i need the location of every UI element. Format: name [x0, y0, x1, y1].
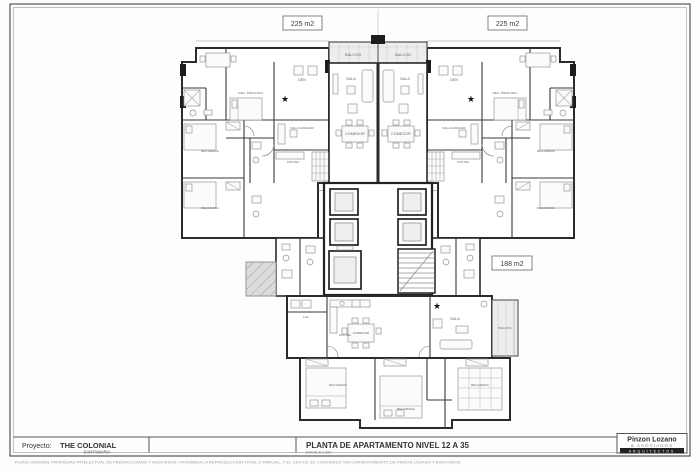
room-label-balcon-right: BALCON: [395, 53, 411, 57]
room-label-sala-left: SALA: [346, 77, 356, 81]
star-symbol-icon: ★: [433, 301, 441, 311]
room-label-recamara-right-2: RECAMARA: [537, 206, 555, 210]
area-badge-label: 225 m2: [291, 21, 314, 28]
firm-line3: ARQUITECTOS: [629, 449, 675, 453]
firm-logo: Pinzon Lozano & ASOCIADOS ARQUITECTOS: [617, 434, 687, 454]
firm-line2: & ASOCIADOS: [631, 443, 673, 448]
room-label-comedor-bottom: COMEDOR: [353, 331, 370, 335]
room-label-sala-bottom: SALA: [450, 317, 460, 321]
apartment-top-left: ★: [180, 48, 330, 296]
drawing-sheet: ★: [0, 0, 700, 471]
center-band: [325, 35, 431, 183]
room-label-recamara-bottom-2: RECAMARA: [397, 407, 415, 411]
core-block: [324, 183, 435, 295]
project-subtitle: SANTAMARIA: [84, 450, 111, 455]
room-label-den-left: DEN: [298, 78, 306, 82]
room-label-cocina-left: COCINA: [287, 160, 299, 164]
room-label-recamara-bottom-3: RECAMARA: [471, 383, 489, 387]
star-symbol-icon: ★: [281, 94, 289, 104]
room-label-comedor-left: COMEDOR: [345, 132, 365, 136]
room-label-recamara-right-1: RECAMARA: [537, 149, 555, 153]
copyright-disclaimer: PLANO ORIGINAL PROPIEDAD INTELECTUAL DE …: [15, 460, 462, 465]
room-label-recamara-bottom-1: RECAMARA: [329, 383, 347, 387]
room-label-lav: LAV: [303, 315, 309, 319]
room-label-cocina-bottom: COCINA: [339, 333, 351, 337]
drawing-title: PLANTA DE APARTAMENTO NIVEL 12 A 35: [306, 441, 470, 450]
title-block: Proyecto: THE COLONIAL SANTAMARIA PLANTA…: [14, 434, 688, 455]
room-label-den-right: DEN: [450, 78, 458, 82]
drawing-scale: ESCALA 1:100: [306, 451, 331, 455]
hatched-terrace: [246, 262, 276, 296]
room-label-recamara-left-1: RECAMARA: [201, 149, 219, 153]
room-label-sala-familiar-left: SALA FAMILIAR: [290, 126, 314, 130]
floor-plan: ★: [0, 0, 700, 471]
room-label-sala-familiar-right: SALA FAMILIAR: [442, 126, 466, 130]
area-badge-label: 188 m2: [500, 261, 523, 268]
room-label-sala-right: SALA: [400, 77, 410, 81]
area-badge-label: 225 m2: [496, 21, 519, 28]
room-label-comedor-right: COMEDOR: [391, 132, 411, 136]
room-label-rec-principal-right: REC. PRINCIPAL: [492, 91, 517, 95]
project-label: Proyecto:: [22, 443, 52, 450]
room-label-rec-principal-left: REC. PRINCIPAL: [238, 91, 263, 95]
room-label-recamara-left-2: RECAMARA: [201, 206, 219, 210]
room-label-balcon-left: BALCON: [345, 53, 361, 57]
room-label-balcon-bottom: BALCON: [499, 326, 512, 330]
room-label-cocina-right: COCINA: [457, 160, 469, 164]
